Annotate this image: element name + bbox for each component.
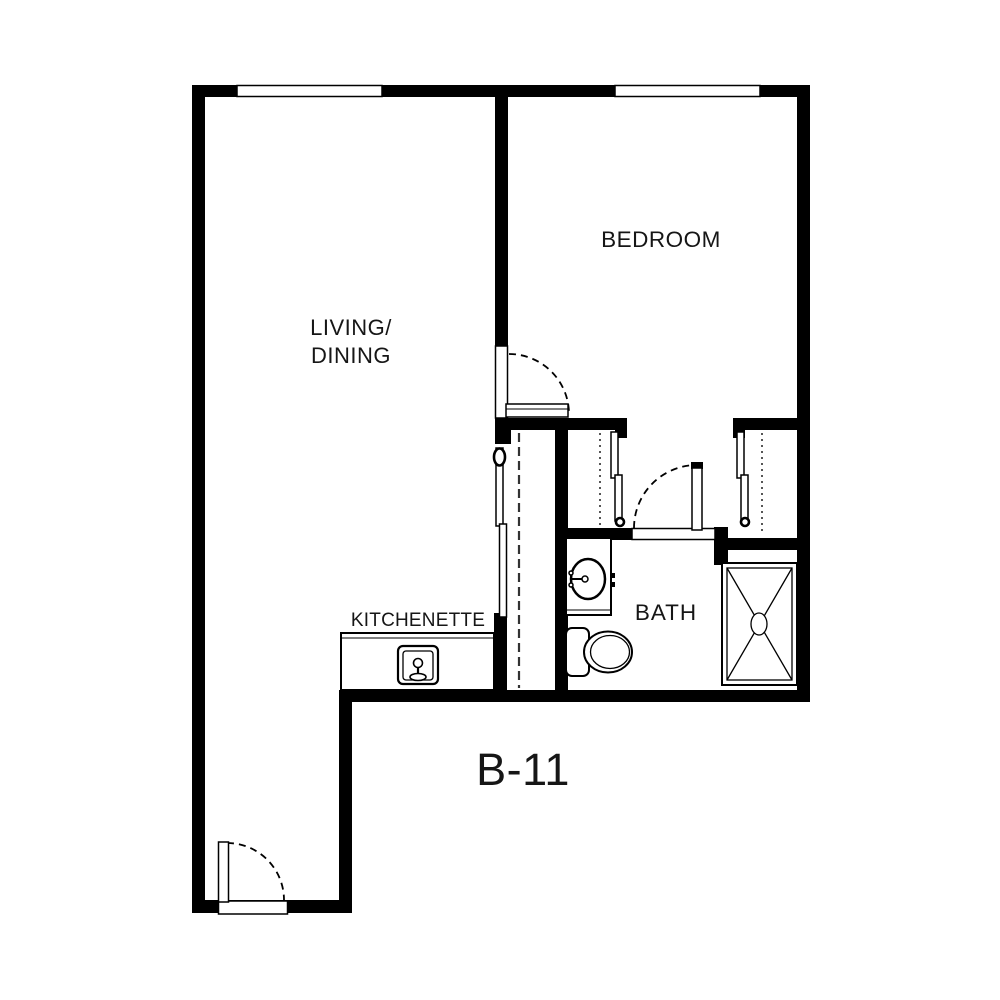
right-closet-sliding-panel-2 [741,475,748,521]
pantry-door-knob-icon [494,449,505,466]
shower-drain-icon [751,613,767,635]
wall-bath-door-hinge-block [714,527,728,565]
bath-label: BATH [635,600,697,626]
vanity-tick-1 [611,573,615,578]
right-closet-sliding-panel-1 [737,432,744,478]
right-closet [737,432,762,534]
living-label-line1: LIVING/ [310,314,392,342]
kitchenette-fixtures [341,633,494,690]
wall-living-bedroom-divider [495,97,508,346]
wall-bottom-right-section [339,690,810,702]
wall-lower-left-vertical [339,690,352,913]
living-window-icon [237,86,382,97]
unit-number-label: B-11 [476,744,570,796]
bedroom-window-icon [615,86,760,97]
bath-door-swing-arc [634,465,697,528]
left-closet-sliding-panel-2 [615,475,622,521]
vanity-tick-2 [611,582,615,587]
bedroom-label: BEDROOM [601,227,721,253]
wall-right-closet-bottom [728,538,797,550]
kitchen-sink-faucet-base [410,674,426,681]
bath-door-leaf [692,468,702,530]
bedroom-door-leaf [506,404,568,417]
toilet-icon [584,632,632,673]
floor-plan-drawing [0,0,1000,1000]
sink-handle-cold [569,583,573,587]
wall-right [797,85,810,702]
kitchenette-label: KITCHENETTE [351,610,485,632]
sink-faucet-knob [582,576,588,582]
pantry-sliding-panel-2 [500,524,507,617]
entry-door-threshold [219,901,288,914]
left-closet-sliding-panel-1 [611,432,618,478]
wall-cap-divider [495,418,511,444]
wall-pantry-left-lower [494,613,507,702]
living-label-line2: DINING [310,342,392,370]
sink-handle-hot [569,571,573,575]
right-closet-knob-icon [741,518,749,526]
floor-plan: LIVING/ DINING BEDROOM KITCHENETTE BATH … [0,0,1000,1000]
wall-left [192,85,205,913]
kitchen-sink-faucet-knob [414,659,423,668]
left-closet [600,432,624,526]
entry-door-swing-arc [227,843,284,900]
left-closet-knob-icon [616,518,624,526]
living-dining-label: LIVING/ DINING [310,314,392,370]
entry-door-leaf [219,842,229,902]
